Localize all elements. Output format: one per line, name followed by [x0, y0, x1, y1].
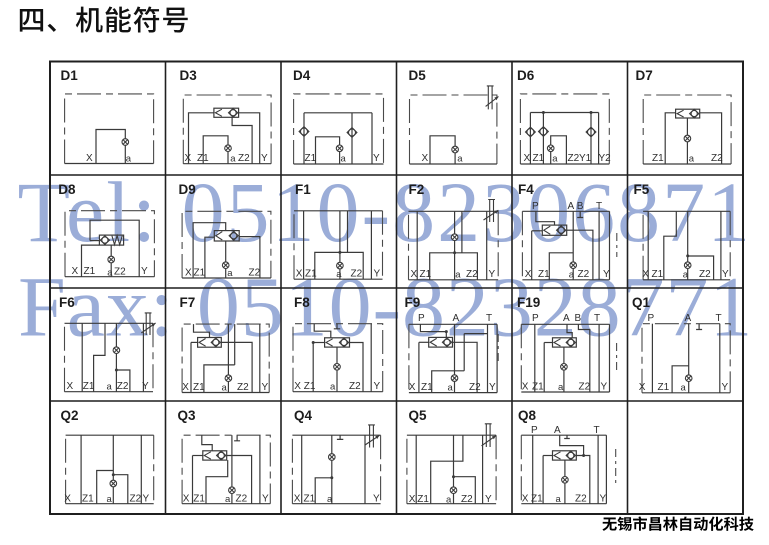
svg-text:P: P: [532, 201, 539, 212]
svg-text:Q1: Q1: [632, 295, 651, 310]
svg-text:Z1: Z1: [532, 382, 544, 393]
svg-text:Z1: Z1: [538, 269, 550, 280]
svg-text:Y: Y: [262, 382, 269, 393]
svg-text:A: A: [685, 313, 692, 324]
svg-text:a: a: [446, 495, 452, 506]
svg-text:Q4: Q4: [294, 408, 313, 423]
svg-text:X: X: [411, 269, 418, 280]
svg-text:Q8: Q8: [518, 408, 537, 423]
svg-text:Z2: Z2: [351, 269, 363, 280]
svg-text:Y2: Y2: [599, 153, 612, 164]
svg-text:Z1: Z1: [197, 153, 209, 164]
svg-text:Q2: Q2: [61, 408, 79, 423]
svg-text:Y1: Y1: [579, 153, 592, 164]
svg-text:Z1: Z1: [82, 494, 94, 505]
svg-text:D6: D6: [517, 68, 535, 83]
svg-text:a: a: [222, 383, 228, 394]
svg-text:Y: Y: [141, 266, 148, 277]
svg-text:Z1: Z1: [305, 153, 317, 164]
svg-text:P: P: [532, 313, 539, 324]
svg-text:Z2: Z2: [130, 494, 142, 505]
svg-text:a: a: [336, 269, 342, 280]
svg-text:B: B: [577, 201, 584, 212]
svg-text:X: X: [639, 382, 646, 393]
svg-text:a: a: [341, 154, 347, 165]
svg-text:T: T: [594, 425, 600, 436]
svg-text:Z1: Z1: [193, 494, 205, 505]
svg-text:X: X: [294, 494, 301, 505]
svg-text:F4: F4: [518, 182, 534, 197]
svg-text:Z1: Z1: [531, 494, 543, 505]
svg-text:Z2: Z2: [575, 494, 587, 505]
svg-text:Z2: Z2: [578, 269, 590, 280]
svg-text:X: X: [524, 153, 531, 164]
svg-text:Y: Y: [143, 494, 150, 505]
svg-text:Q5: Q5: [409, 408, 428, 423]
svg-text:Z2: Z2: [568, 153, 580, 164]
svg-text:a: a: [556, 494, 562, 505]
svg-text:X: X: [67, 381, 74, 392]
svg-text:X: X: [185, 153, 192, 164]
svg-text:Z1: Z1: [652, 269, 664, 280]
svg-text:Z1: Z1: [652, 153, 664, 164]
svg-text:a: a: [107, 268, 113, 279]
svg-text:P: P: [648, 313, 655, 324]
svg-text:Z2: Z2: [249, 268, 261, 279]
svg-text:a: a: [126, 154, 132, 165]
svg-text:F19: F19: [517, 295, 540, 310]
svg-text:a: a: [558, 382, 564, 393]
svg-text:Z1: Z1: [193, 382, 205, 393]
svg-text:Z2: Z2: [238, 153, 250, 164]
svg-text:Z2: Z2: [349, 381, 361, 392]
svg-text:X: X: [522, 382, 529, 393]
svg-text:Z1: Z1: [84, 266, 96, 277]
svg-text:Y: Y: [489, 382, 496, 393]
svg-text:a: a: [330, 382, 336, 393]
svg-text:Y: Y: [603, 269, 610, 280]
svg-text:D4: D4: [293, 68, 311, 83]
svg-text:a: a: [683, 270, 689, 281]
svg-text:Z2: Z2: [469, 382, 481, 393]
svg-text:a: a: [230, 154, 236, 165]
svg-text:Z2: Z2: [236, 494, 248, 505]
svg-text:D8: D8: [58, 182, 76, 197]
svg-text:P: P: [418, 313, 425, 324]
svg-text:Y: Y: [373, 153, 380, 164]
svg-text:A: A: [453, 313, 460, 324]
svg-text:Z1: Z1: [194, 268, 206, 279]
svg-text:D9: D9: [179, 182, 196, 197]
svg-text:Z1: Z1: [304, 381, 316, 392]
svg-text:Y: Y: [373, 494, 380, 505]
svg-text:X: X: [294, 381, 301, 392]
svg-text:B: B: [575, 313, 582, 324]
svg-text:Z1: Z1: [305, 269, 317, 280]
svg-text:A: A: [554, 425, 561, 436]
svg-text:a: a: [569, 270, 575, 281]
svg-text:T: T: [486, 313, 492, 324]
svg-text:F1: F1: [295, 182, 311, 197]
svg-text:D3: D3: [180, 68, 198, 83]
svg-text:Y: Y: [485, 494, 492, 505]
svg-text:Z2: Z2: [711, 153, 723, 164]
svg-text:F9: F9: [405, 295, 421, 310]
svg-text:Z2: Z2: [114, 267, 126, 278]
svg-text:Z1: Z1: [421, 382, 433, 393]
svg-text:Y: Y: [374, 381, 381, 392]
svg-text:X: X: [409, 494, 416, 505]
svg-text:a: a: [689, 154, 695, 165]
svg-text:F6: F6: [59, 295, 75, 310]
svg-text:a: a: [448, 383, 454, 394]
svg-text:Z2: Z2: [237, 382, 249, 393]
svg-text:Y: Y: [261, 153, 268, 164]
svg-text:P: P: [531, 425, 538, 436]
svg-text:F8: F8: [294, 295, 310, 310]
svg-text:Y: Y: [722, 269, 729, 280]
svg-text:Tel: 0510-82306871: Tel: 0510-82306871: [18, 164, 753, 260]
svg-text:X: X: [182, 382, 189, 393]
svg-text:X: X: [183, 494, 190, 505]
svg-text:Z1: Z1: [304, 494, 316, 505]
svg-text:X: X: [72, 266, 79, 277]
svg-text:F5: F5: [634, 182, 650, 197]
svg-text:Z1: Z1: [83, 381, 95, 392]
svg-text:X: X: [64, 494, 71, 505]
svg-text:D7: D7: [636, 68, 653, 83]
svg-text:Y: Y: [142, 381, 149, 392]
svg-text:X: X: [86, 153, 93, 164]
svg-text:D5: D5: [409, 68, 427, 83]
svg-text:Y: Y: [262, 494, 269, 505]
svg-text:F7: F7: [180, 295, 196, 310]
svg-text:Y: Y: [722, 382, 729, 393]
svg-text:a: a: [327, 494, 333, 505]
svg-text:X: X: [522, 494, 529, 505]
svg-text:a: a: [107, 382, 113, 393]
svg-text:Z2: Z2: [461, 494, 473, 505]
svg-text:T: T: [716, 313, 722, 324]
svg-text:Z2: Z2: [117, 381, 129, 392]
svg-text:Y: Y: [489, 269, 496, 280]
svg-text:a: a: [457, 154, 463, 165]
svg-text:T: T: [594, 313, 600, 324]
svg-text:a: a: [455, 270, 461, 281]
svg-text:Q3: Q3: [178, 408, 197, 423]
svg-text:Z2: Z2: [699, 269, 711, 280]
svg-text:X: X: [525, 269, 532, 280]
svg-text:Z1: Z1: [533, 153, 545, 164]
svg-text:a: a: [552, 154, 558, 165]
svg-text:X: X: [185, 268, 192, 279]
svg-text:F2: F2: [409, 182, 425, 197]
svg-text:a: a: [225, 494, 231, 505]
svg-text:X: X: [296, 269, 303, 280]
svg-text:T: T: [596, 201, 602, 212]
svg-text:a: a: [681, 383, 687, 394]
svg-text:a: a: [107, 494, 113, 505]
svg-text:Z2: Z2: [579, 382, 591, 393]
svg-text:Y: Y: [601, 382, 608, 393]
svg-text:A: A: [568, 201, 575, 212]
svg-text:X: X: [422, 153, 429, 164]
svg-text:Z1: Z1: [420, 269, 432, 280]
svg-text:Z2: Z2: [466, 269, 478, 280]
svg-text:A: A: [563, 313, 570, 324]
svg-text:D1: D1: [61, 68, 79, 83]
svg-text:Z1: Z1: [417, 494, 429, 505]
svg-text:a: a: [227, 268, 233, 279]
svg-text:X: X: [642, 269, 649, 280]
svg-text:Y: Y: [374, 269, 381, 280]
svg-text:Y: Y: [600, 494, 607, 505]
svg-text:Z1: Z1: [658, 382, 670, 393]
svg-text:X: X: [409, 382, 416, 393]
